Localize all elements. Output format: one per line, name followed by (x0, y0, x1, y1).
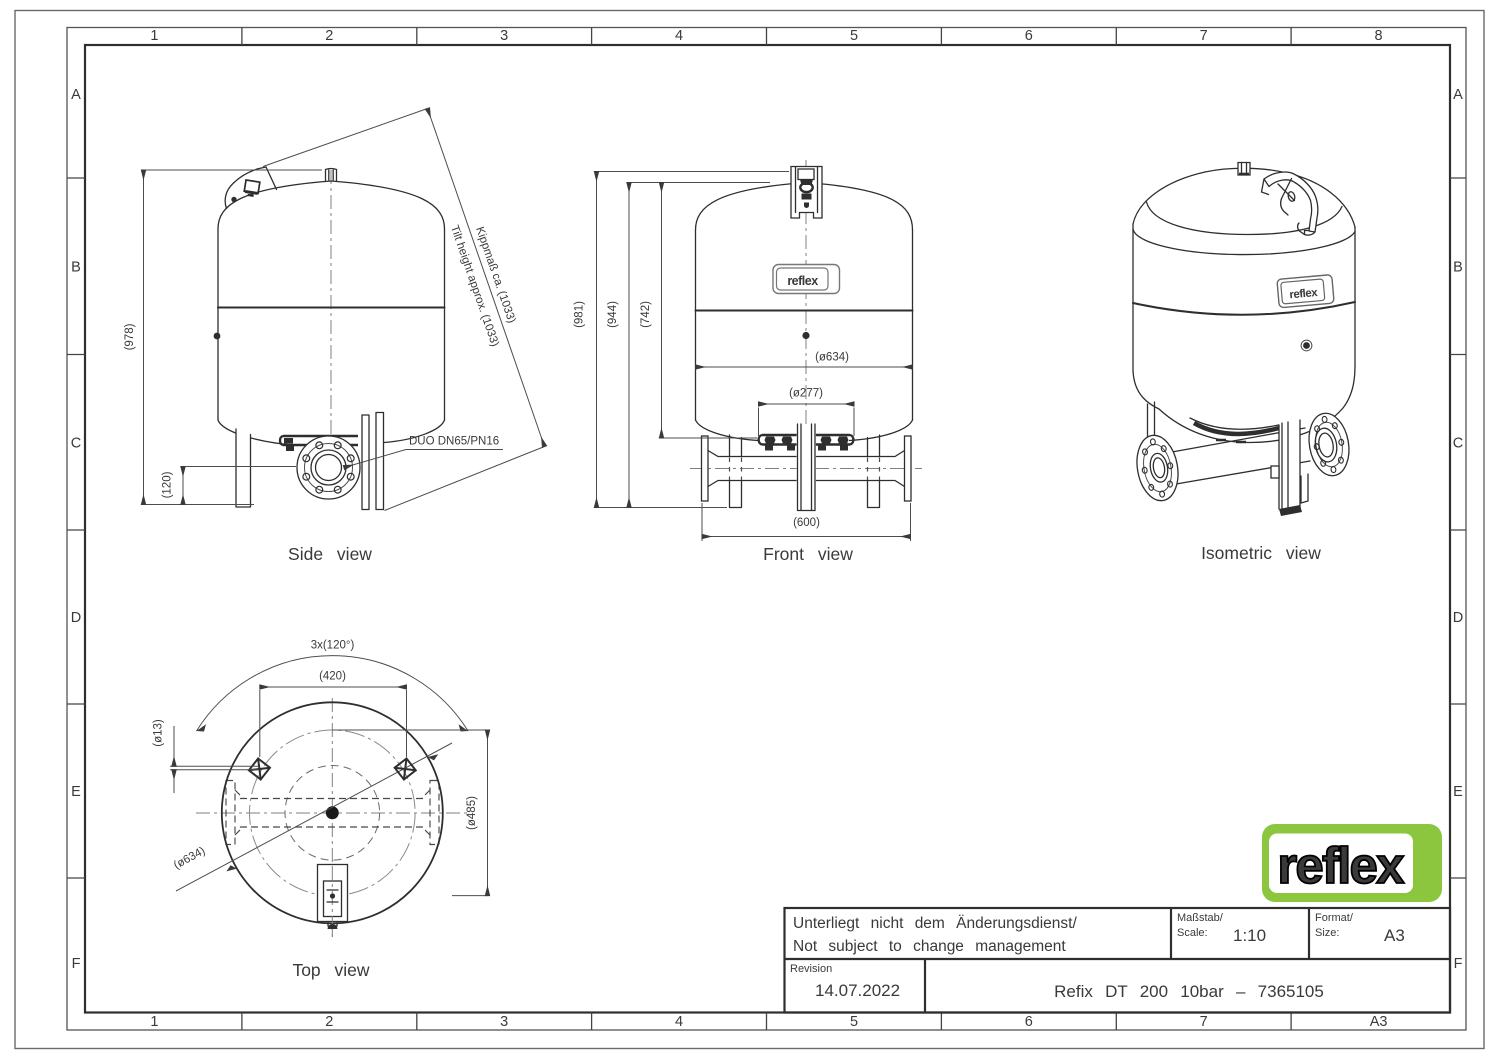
svg-text:6: 6 (1025, 28, 1033, 44)
svg-text:1: 1 (150, 28, 158, 44)
svg-text:3: 3 (500, 1014, 508, 1030)
svg-text:(ø13): (ø13) (153, 719, 165, 747)
svg-text:C: C (71, 436, 81, 452)
svg-text:Front view: Front view (763, 544, 853, 564)
svg-text:Revision: Revision (790, 963, 832, 975)
svg-text:A3: A3 (1384, 926, 1405, 945)
svg-text:4: 4 (675, 28, 683, 44)
svg-text:Maßstab/: Maßstab/ (1177, 912, 1224, 924)
svg-text:C: C (1453, 436, 1463, 452)
svg-text:reflex: reflex (787, 274, 818, 288)
svg-text:(944): (944) (607, 301, 619, 328)
svg-text:B: B (1453, 260, 1463, 276)
svg-text:14.07.2022: 14.07.2022 (815, 981, 900, 1000)
svg-text:A3: A3 (1370, 1014, 1388, 1030)
svg-text:3: 3 (500, 28, 508, 44)
svg-text:(981): (981) (574, 301, 586, 328)
svg-text:Unterliegt nicht dem Änderungs: Unterliegt nicht dem Änderungsdienst/ (793, 915, 1077, 932)
svg-text:(742): (742) (640, 301, 652, 328)
svg-text:2: 2 (325, 1014, 333, 1030)
svg-text:F: F (72, 956, 81, 972)
svg-text:A: A (1453, 87, 1463, 103)
svg-text:5: 5 (850, 28, 858, 44)
svg-text:Isometric view: Isometric view (1201, 543, 1321, 563)
svg-text:Side view: Side view (288, 544, 372, 564)
svg-text:7: 7 (1200, 28, 1208, 44)
svg-text:4: 4 (675, 1014, 683, 1030)
svg-text:5: 5 (850, 1014, 858, 1030)
svg-text:F: F (1454, 956, 1463, 972)
svg-text:6: 6 (1025, 1014, 1033, 1030)
svg-text:E: E (71, 784, 81, 800)
svg-text:(600): (600) (793, 517, 820, 529)
svg-text:DUO DN65/PN16: DUO DN65/PN16 (409, 436, 499, 448)
svg-text:(ø634): (ø634) (815, 352, 849, 364)
svg-text:Scale:: Scale: (1177, 927, 1208, 939)
svg-text:E: E (1453, 784, 1463, 800)
svg-text:Format/: Format/ (1315, 912, 1354, 924)
svg-text:1: 1 (150, 1014, 158, 1030)
svg-text:8: 8 (1375, 28, 1383, 44)
svg-text:Top view: Top view (292, 960, 369, 980)
svg-text:Not subject to change manageme: Not subject to change management (793, 938, 1066, 955)
svg-text:(ø277): (ø277) (789, 388, 823, 400)
svg-text:(420): (420) (319, 671, 346, 683)
svg-text:2: 2 (325, 28, 333, 44)
svg-text:D: D (1453, 610, 1463, 626)
svg-text:(ø485): (ø485) (466, 796, 478, 830)
svg-text:3x(120°): 3x(120°) (311, 640, 355, 652)
svg-text:(120): (120) (162, 471, 174, 498)
svg-text:7: 7 (1200, 1014, 1208, 1030)
svg-text:(978): (978) (124, 323, 136, 350)
svg-text:Size:: Size: (1315, 927, 1339, 939)
svg-text:A: A (71, 87, 81, 103)
svg-text:Refix DT 200 10bar – 7365105: Refix DT 200 10bar – 7365105 (1054, 982, 1324, 1001)
svg-text:1:10: 1:10 (1233, 926, 1266, 945)
svg-text:reflex: reflex (1277, 837, 1404, 894)
svg-text:reflex: reflex (1289, 287, 1319, 301)
svg-text:D: D (71, 610, 81, 626)
svg-text:B: B (71, 260, 81, 276)
